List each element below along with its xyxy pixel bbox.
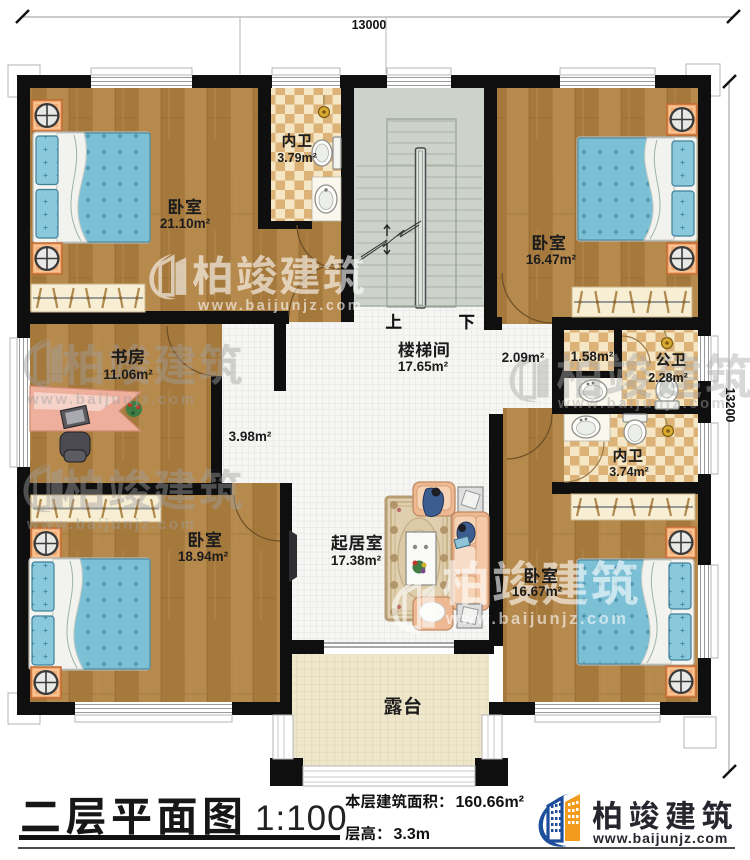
- svg-text:17.65m²: 17.65m²: [398, 359, 449, 374]
- svg-text:www.baijunjz.com: www.baijunjz.com: [557, 395, 727, 412]
- svg-text:16.67m²: 16.67m²: [512, 584, 563, 599]
- svg-text:2.28m²: 2.28m²: [648, 371, 688, 385]
- svg-text:13000: 13000: [352, 18, 387, 32]
- svg-text:3.74m²: 3.74m²: [609, 465, 649, 479]
- svg-text:3.79m²: 3.79m²: [277, 151, 317, 165]
- svg-text:www.baijunjz.com: www.baijunjz.com: [445, 610, 628, 628]
- svg-text:16.47m²: 16.47m²: [526, 252, 577, 267]
- svg-text:www.baijunjz.com: www.baijunjz.com: [592, 830, 728, 846]
- svg-text:160.66m²: 160.66m²: [456, 794, 525, 811]
- svg-text:21.10m²: 21.10m²: [160, 216, 211, 231]
- svg-text:11.06m²: 11.06m²: [103, 367, 153, 382]
- svg-text:18.94m²: 18.94m²: [178, 549, 229, 564]
- svg-text:13200: 13200: [723, 388, 737, 423]
- svg-text:3.3m: 3.3m: [394, 826, 430, 843]
- svg-text:www.baijunjz.com: www.baijunjz.com: [26, 516, 196, 533]
- svg-text:3.98m²: 3.98m²: [229, 429, 272, 444]
- svg-text:www.baijunjz.com: www.baijunjz.com: [197, 298, 363, 314]
- svg-text:1:100: 1:100: [255, 799, 348, 838]
- svg-text:1.58m²: 1.58m²: [571, 349, 614, 364]
- svg-text:2.09m²: 2.09m²: [502, 350, 545, 365]
- svg-text:www.baijunjz.com: www.baijunjz.com: [26, 391, 196, 408]
- svg-text:17.38m²: 17.38m²: [331, 553, 382, 568]
